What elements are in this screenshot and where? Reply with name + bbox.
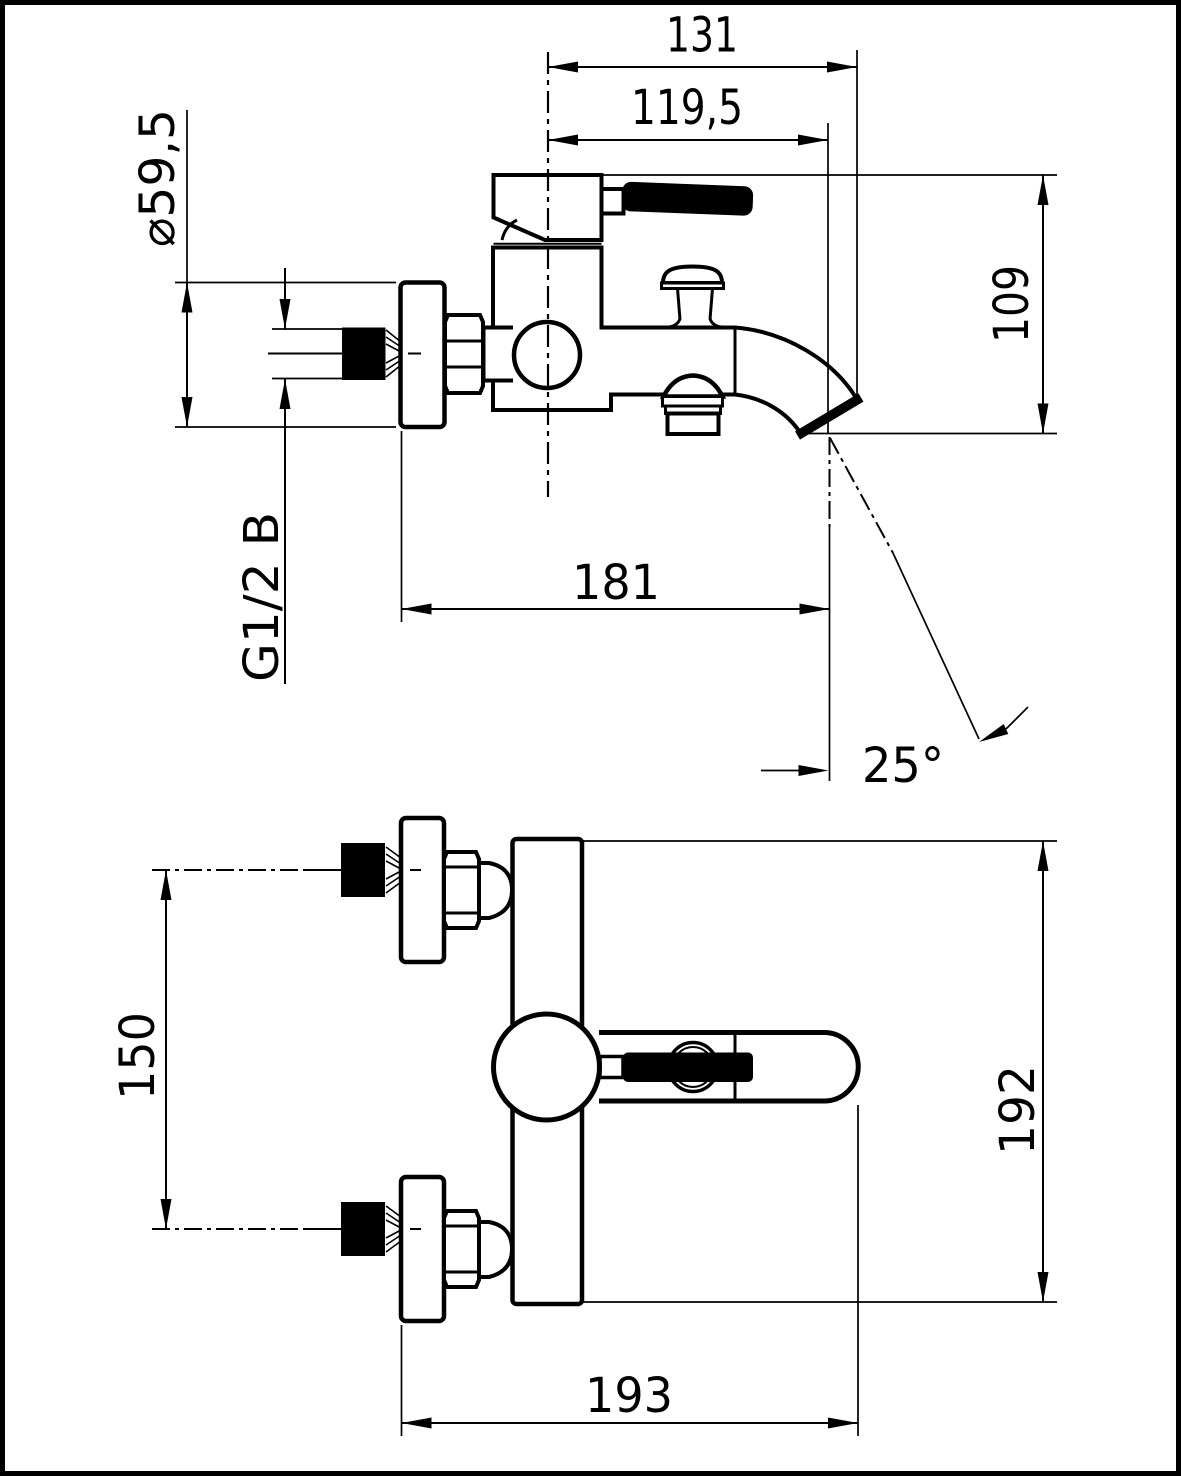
front-handle xyxy=(599,1033,858,1102)
dim-wall-to-outlet-label: 181 xyxy=(572,555,660,611)
front-dome-bottom xyxy=(479,1222,512,1277)
dim-inlet-spacing: 150 xyxy=(110,870,305,1229)
front-wall-flange-bottom xyxy=(401,1177,444,1321)
dim-spout-projection-label: 119,5 xyxy=(631,80,743,136)
diverter-knob xyxy=(662,267,724,328)
lever-grip-side xyxy=(621,182,753,217)
dim-inlet-spacing-label: 150 xyxy=(110,1012,166,1100)
technical-drawing-page: 131 119,5 ⌀59,5 G1/2 B xyxy=(0,0,1181,1476)
dim-wall-to-outlet: 181 xyxy=(402,431,830,622)
front-wall-flange-top xyxy=(401,818,444,962)
side-view: 131 119,5 ⌀59,5 G1/2 B xyxy=(130,8,1057,795)
front-wall-connection-bottom xyxy=(305,1177,512,1321)
side-hex-nut xyxy=(445,315,483,393)
front-hex-nut-bottom xyxy=(444,1211,479,1287)
front-hex-nut-top xyxy=(444,852,479,928)
dim-overall-width-label: 193 xyxy=(585,1368,673,1424)
spout-angle-label: 25° xyxy=(862,738,944,794)
dim-spout-angle: 25° xyxy=(761,437,1028,794)
front-dome-top xyxy=(479,863,512,918)
lever-grip-front xyxy=(623,1053,753,1083)
body-inlet-boss xyxy=(484,328,514,381)
front-wall-connection-top xyxy=(305,818,512,962)
dim-height-label: 109 xyxy=(984,265,1040,343)
thread-size-label: G1/2 B xyxy=(234,512,290,682)
dim-total-width-label: 131 xyxy=(666,8,738,64)
side-wall-flange xyxy=(401,283,445,428)
aerator-assembly xyxy=(663,376,723,435)
faucet-dimension-drawing: 131 119,5 ⌀59,5 G1/2 B xyxy=(0,0,1181,1476)
lever-stem xyxy=(602,189,624,214)
cartridge-cap-front xyxy=(494,1014,600,1120)
front-thread-union-bottom xyxy=(341,1202,385,1256)
dim-thread-size: G1/2 B xyxy=(234,268,291,684)
front-thread-union-top xyxy=(341,843,385,897)
dim-flange-diameter-label: ⌀59,5 xyxy=(130,109,186,247)
front-view: 150 192 193 xyxy=(110,818,1057,1436)
side-thread-union xyxy=(342,328,386,381)
dim-overall-height-label: 192 xyxy=(990,1065,1046,1155)
side-wall-connection xyxy=(268,283,483,428)
